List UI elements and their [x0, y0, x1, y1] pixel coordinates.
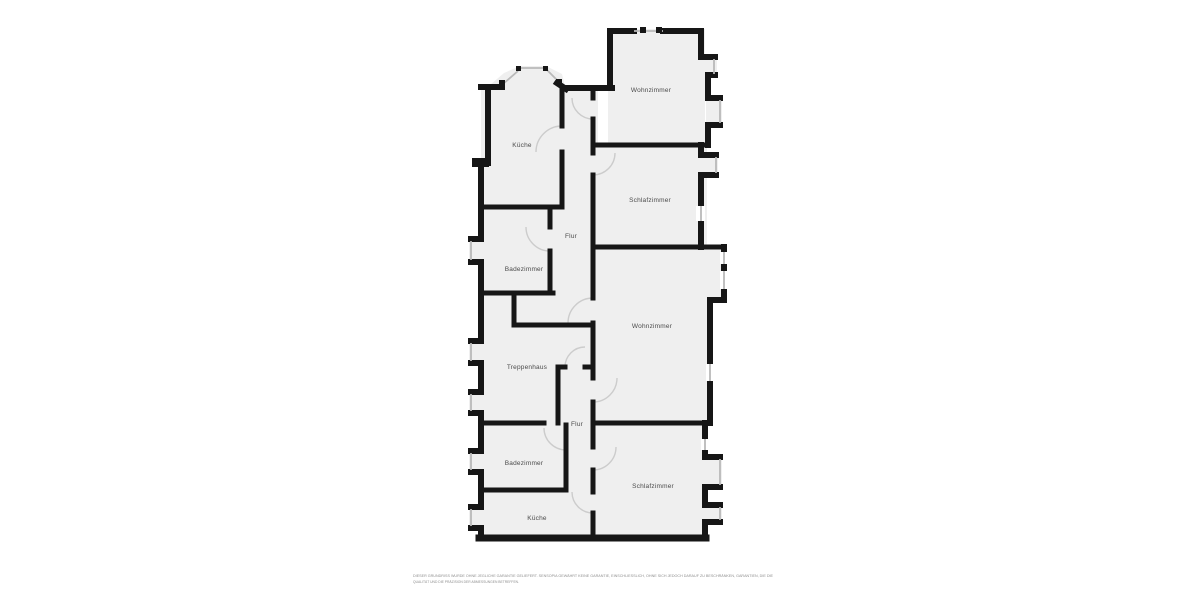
- room-label-flur-bottom: Flur: [571, 421, 584, 428]
- left-column-floor: [481, 88, 598, 538]
- floorplan-svg: Wohnzimmer Küche Schlafzimmer Flur Badez…: [0, 0, 1200, 600]
- bay-corner-tick: [556, 79, 562, 85]
- room-label-schlafzimmer-bottom: Schlafzimmer: [632, 483, 674, 490]
- room-label-kueche-bottom: Küche: [527, 515, 547, 522]
- floorplan-canvas: Wohnzimmer Küche Schlafzimmer Flur Badez…: [0, 0, 1200, 600]
- mullion-tick: [640, 27, 646, 33]
- room-label-wohnzimmer-top: Wohnzimmer: [631, 87, 672, 94]
- room-label-badezimmer-top: Badezimmer: [505, 266, 544, 273]
- room-label-wohnzimmer-middle: Wohnzimmer: [632, 323, 673, 330]
- bay-corner-tick: [543, 66, 548, 71]
- room-label-flur-top: Flur: [565, 233, 578, 240]
- bay-corner-tick: [516, 66, 521, 71]
- room-label-badezimmer-bottom: Badezimmer: [505, 460, 544, 467]
- room-label-schlafzimmer-top: Schlafzimmer: [629, 197, 671, 204]
- bay-corner-tick: [499, 80, 505, 86]
- disclaimer-line-2: QUALITÄT UND DIE PRÄZISION DER ABMESSUNG…: [413, 579, 519, 584]
- disclaimer-text: DIESER GRUNDRISS WURDE OHNE JEGLICHE GAR…: [413, 573, 773, 584]
- left-wall-step: [472, 158, 489, 167]
- mullion-tick: [656, 27, 662, 33]
- disclaimer-line-1: DIESER GRUNDRISS WURDE OHNE JEGLICHE GAR…: [413, 573, 773, 578]
- room-label-treppenhaus: Treppenhaus: [507, 364, 548, 371]
- room-label-kueche-top: Küche: [512, 142, 532, 149]
